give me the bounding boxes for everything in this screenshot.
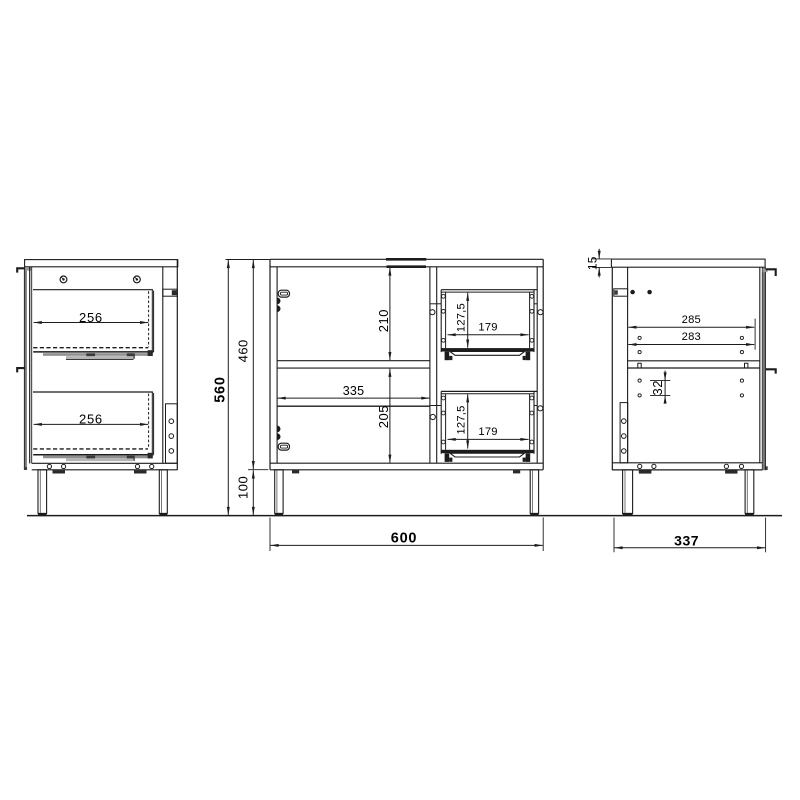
svg-text:283: 283 (682, 331, 701, 343)
svg-text:127,5: 127,5 (456, 406, 468, 435)
svg-text:100: 100 (236, 476, 251, 499)
svg-text:285: 285 (682, 314, 701, 326)
svg-text:127,5: 127,5 (456, 303, 468, 332)
svg-text:15: 15 (585, 256, 599, 270)
svg-text:205: 205 (376, 405, 391, 428)
svg-text:560: 560 (213, 376, 229, 403)
svg-text:179: 179 (478, 322, 497, 334)
svg-text:256: 256 (79, 412, 103, 427)
svg-text:32: 32 (650, 380, 665, 395)
svg-text:600: 600 (391, 531, 418, 547)
svg-text:337: 337 (674, 532, 699, 548)
svg-text:210: 210 (376, 309, 391, 332)
svg-text:179: 179 (478, 426, 497, 438)
svg-text:335: 335 (343, 384, 364, 398)
svg-text:460: 460 (236, 339, 251, 362)
svg-text:256: 256 (79, 310, 103, 325)
